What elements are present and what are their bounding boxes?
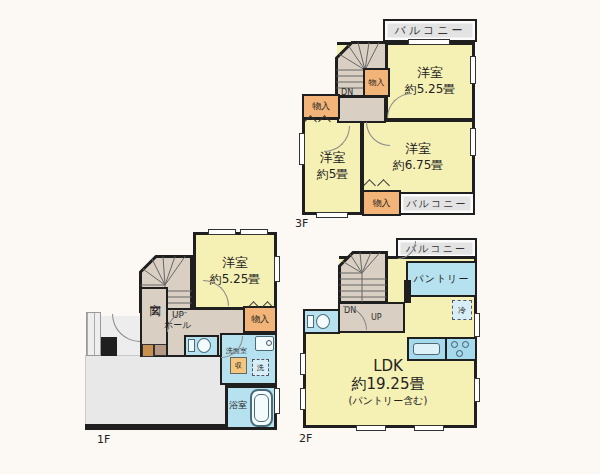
- stairs-2f-up-label: UP: [371, 313, 382, 323]
- window-2f: [414, 425, 444, 431]
- pantry-2f-label: パントリー: [414, 272, 470, 286]
- toilet-bowl-icon: [316, 314, 330, 329]
- kitchen-sink-icon: [413, 343, 440, 355]
- fridge-space-2f-label: 冷: [458, 305, 466, 316]
- ldk-2f-name: LDK: [373, 357, 403, 375]
- window-2f: [300, 353, 306, 375]
- fridge-space-2f: 冷: [452, 300, 472, 320]
- window-2f: [474, 378, 480, 402]
- window-2f: [356, 425, 386, 431]
- window-2f: [300, 388, 306, 410]
- ldk-2f-note: (パントリー含む): [349, 394, 428, 408]
- stove-burner-icon: [462, 341, 469, 348]
- toilet-tank-icon: [307, 315, 314, 328]
- ldk-2f-text: LDK 約19.25畳 (パントリー含む): [328, 356, 448, 408]
- stove-burner-icon: [456, 350, 463, 357]
- stairs-2f-icon: [338, 251, 388, 304]
- kitchen-stove-icon: [445, 337, 477, 361]
- floor-2f-notch-mask: [298, 251, 339, 309]
- ldk-2f-size: 約19.25畳: [352, 375, 425, 394]
- wall-2f-pantry-stub: [404, 280, 411, 303]
- stove-burner-icon: [451, 341, 458, 348]
- floor-plan-2f: バルコニー DN UP パントリー 冷 LDK 約19.25畳 (パントリー含む…: [0, 0, 600, 474]
- pantry-2f: パントリー: [406, 261, 477, 297]
- window-2f: [474, 313, 480, 337]
- floor-label-2f: 2F: [299, 432, 312, 445]
